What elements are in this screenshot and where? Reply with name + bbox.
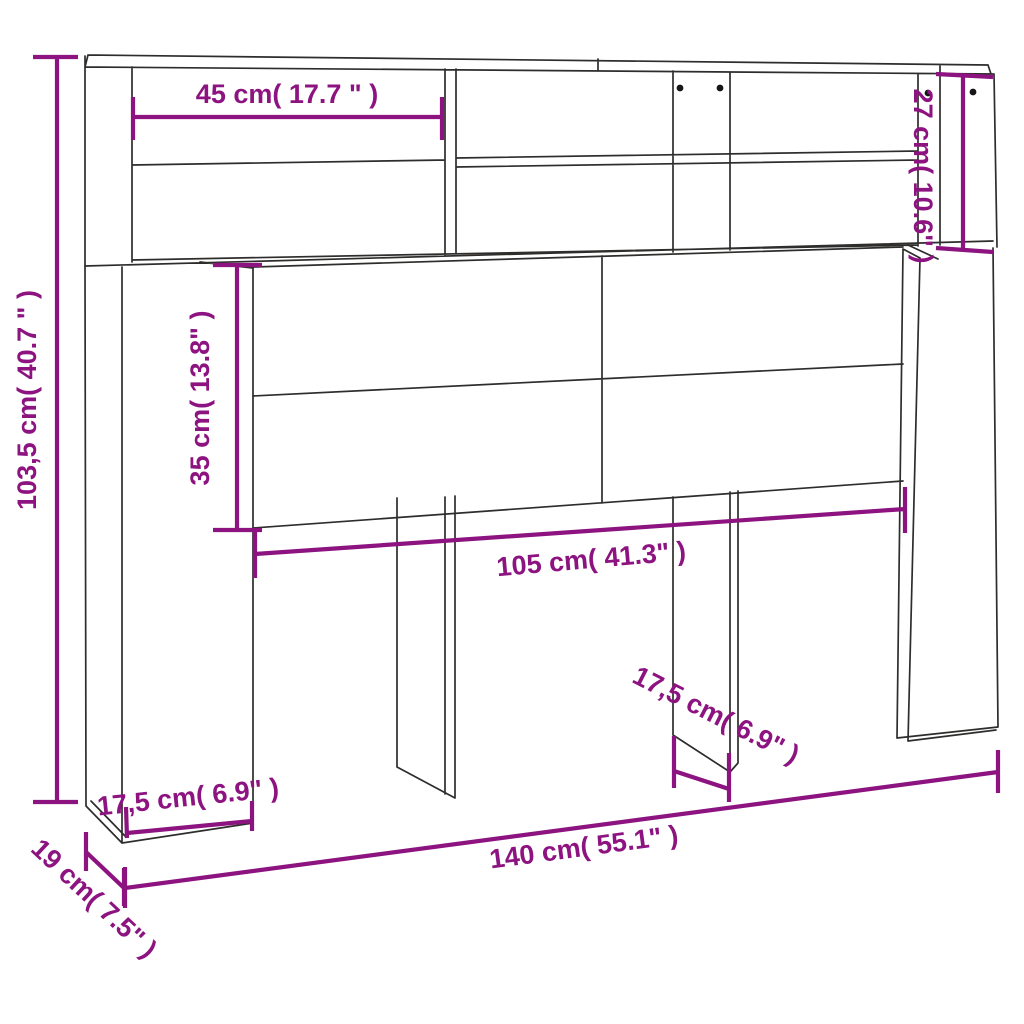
headboard-diagram-canvas: 103,5 cm( 40.7 " ) 45 cm( 17.7 " ) 27 cm… <box>0 0 1024 1024</box>
dim-right-shelf-height-label: 27 cm( 10.6" ) <box>908 89 938 264</box>
dim-mid-panel-height-label: 35 cm( 13.8" ) <box>185 311 215 486</box>
dim-overall-depth: 19 cm( 7.5" ) <box>25 832 162 964</box>
dim-left-foot-depth: 17,5 cm( 6.9" ) <box>96 773 281 838</box>
dim-overall-height-label: 103,5 cm( 40.7 " ) <box>12 290 42 510</box>
dim-inner-width: 105 cm( 41.3" ) <box>255 487 905 582</box>
dim-mid-panel-height: 35 cm( 13.8" ) <box>185 265 262 530</box>
dimension-diagram: 103,5 cm( 40.7 " ) 45 cm( 17.7 " ) 27 cm… <box>0 0 1024 1024</box>
right-side-panel-outline <box>897 248 998 741</box>
dim-mid-foot-depth-label: 17,5 cm( 6.9" ) <box>628 660 804 770</box>
dim-overall-height: 103,5 cm( 40.7 " ) <box>12 57 78 802</box>
dim-overall-width: 140 cm( 55.1" ) <box>125 750 998 908</box>
dim-top-shelf-width: 45 cm( 17.7 " ) <box>133 79 442 140</box>
main-panel-outline <box>253 247 903 528</box>
dim-top-shelf-width-label: 45 cm( 17.7 " ) <box>196 79 378 109</box>
dim-mid-foot-depth: 17,5 cm( 6.9" ) <box>628 660 804 802</box>
left-side-panel-outline <box>85 266 253 843</box>
dim-overall-depth-label: 19 cm( 7.5" ) <box>25 833 162 964</box>
dim-right-shelf-height: 27 cm( 10.6" ) <box>908 74 993 263</box>
dim-inner-width-label: 105 cm( 41.3" ) <box>495 536 687 582</box>
